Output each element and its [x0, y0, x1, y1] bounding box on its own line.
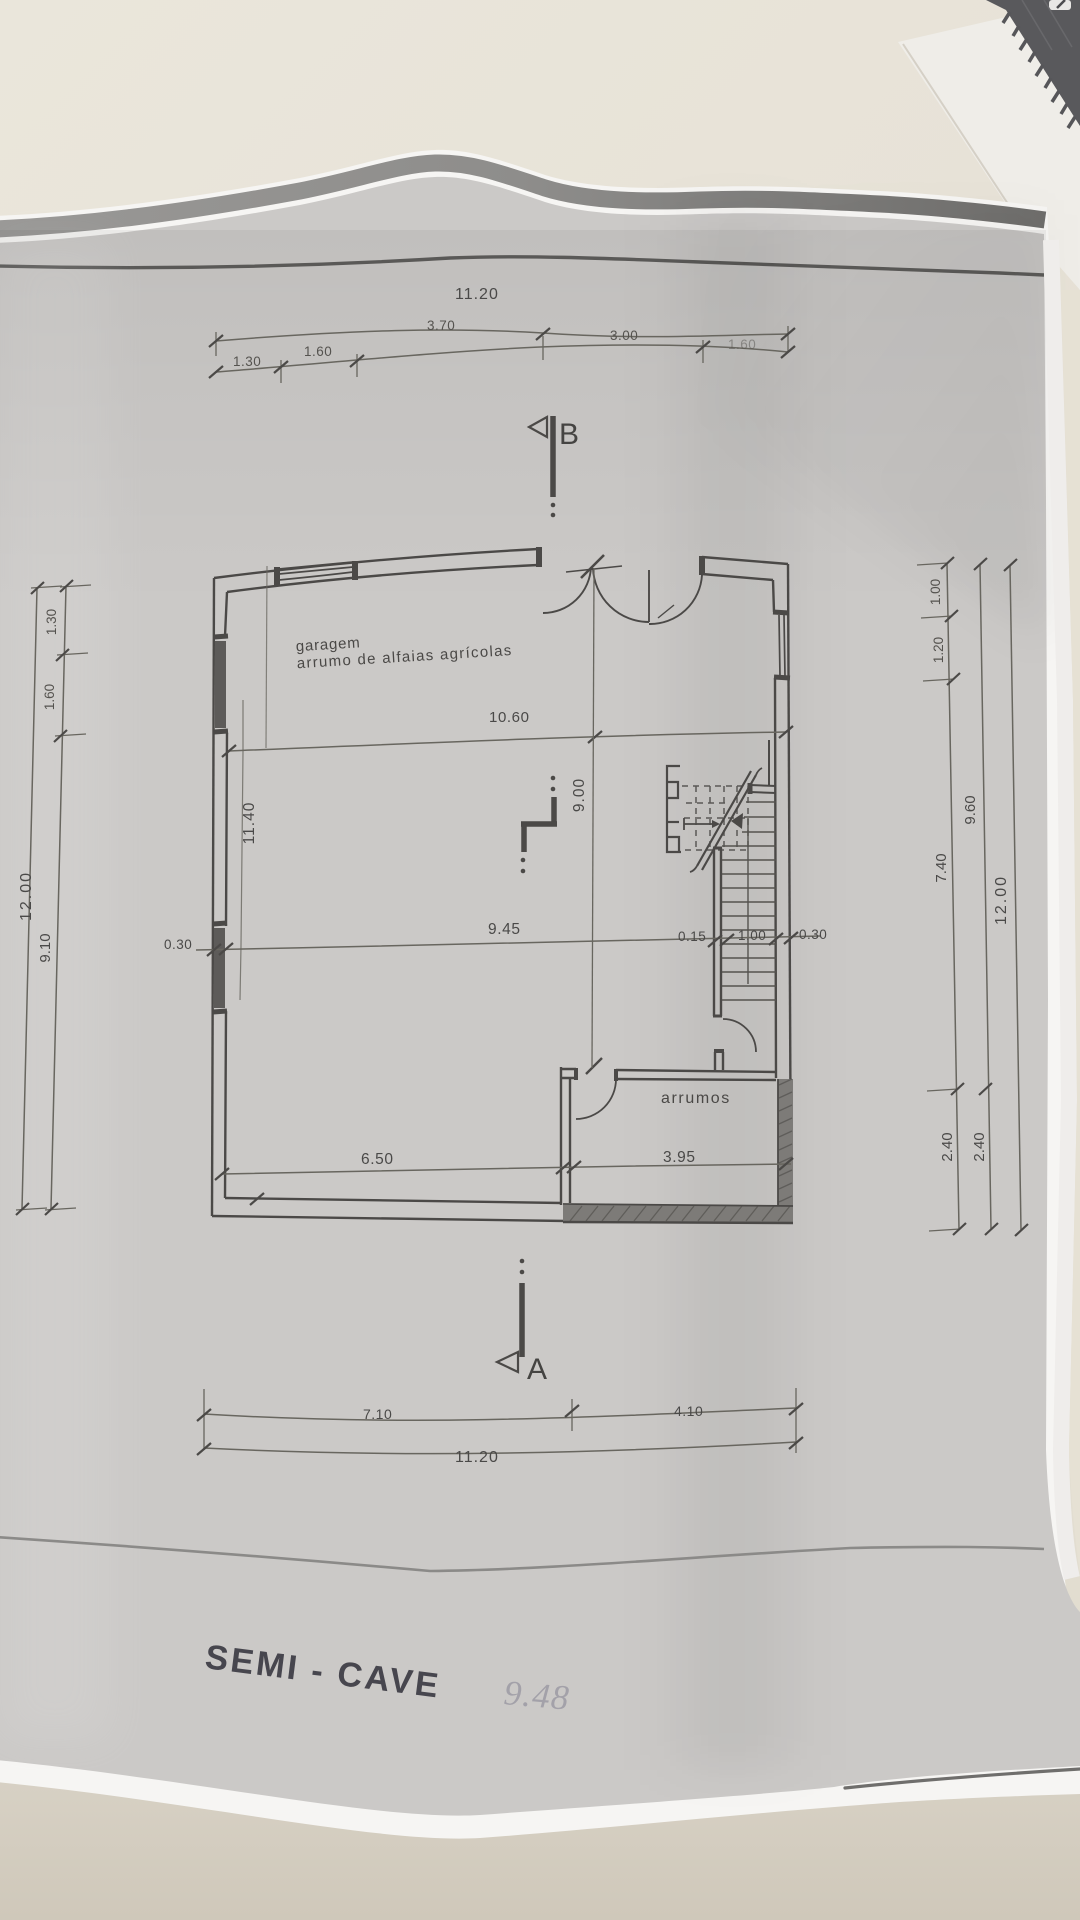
svg-text:1.60: 1.60	[728, 337, 756, 352]
svg-text:9.48: 9.48	[502, 1673, 571, 1718]
svg-text:3.70: 3.70	[427, 318, 455, 333]
svg-text:3.00: 3.00	[610, 328, 638, 343]
svg-text:2.40: 2.40	[971, 1132, 988, 1161]
svg-text:0.30: 0.30	[799, 927, 827, 942]
svg-text:7.40: 7.40	[933, 853, 950, 882]
svg-text:6.50: 6.50	[361, 1151, 394, 1168]
svg-text:1.00: 1.00	[928, 579, 943, 605]
svg-text:3.95: 3.95	[663, 1149, 696, 1166]
svg-text:1.00: 1.00	[738, 928, 766, 943]
svg-text:9.00: 9.00	[571, 778, 588, 812]
svg-text:11.20: 11.20	[455, 286, 499, 303]
svg-text:11.20: 11.20	[455, 1449, 499, 1466]
svg-text:1.20: 1.20	[931, 637, 946, 663]
svg-text:12.00: 12.00	[993, 875, 1010, 925]
svg-text:4.10: 4.10	[674, 1403, 703, 1419]
svg-text:0.30: 0.30	[164, 937, 192, 952]
svg-text:0.15: 0.15	[678, 929, 706, 944]
svg-text:1.60: 1.60	[304, 344, 332, 359]
svg-text:10.60: 10.60	[489, 709, 530, 726]
svg-text:2.40: 2.40	[939, 1132, 956, 1161]
svg-text:11.40: 11.40	[241, 802, 258, 845]
svg-text:9.45: 9.45	[488, 921, 521, 938]
svg-text:1.60: 1.60	[42, 684, 57, 710]
svg-text:12.00: 12.00	[18, 871, 35, 921]
svg-text:A: A	[527, 1353, 547, 1386]
svg-text:1.30: 1.30	[44, 609, 59, 635]
svg-text:9.60: 9.60	[962, 795, 979, 824]
svg-text:B: B	[559, 418, 579, 451]
svg-text:7.10: 7.10	[363, 1406, 392, 1422]
svg-text:arrumos: arrumos	[661, 1090, 731, 1107]
svg-text:1.30: 1.30	[233, 354, 261, 369]
svg-text:9.10: 9.10	[37, 933, 54, 962]
